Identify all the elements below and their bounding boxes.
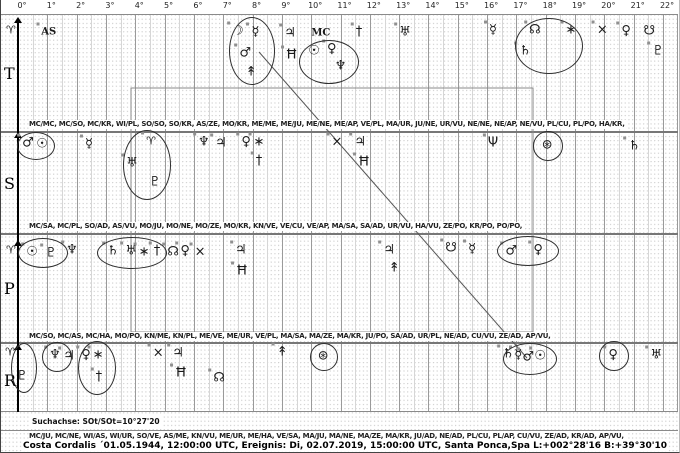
contact-list-row1: MC/MC, MC/SO, MC/KR, WI/PL, SO/SO, SO/KR… [29, 120, 627, 129]
half-degree-line-21 [648, 14, 649, 412]
degree-line-19 [575, 14, 576, 412]
vulkanus-glyph[interactable]: × [597, 24, 608, 37]
kronos-glyph[interactable]: † [256, 155, 263, 168]
vulkanus-glyph[interactable]: × [195, 246, 206, 259]
uranian-dial-chart: 0°1°2°3°4°5°6°7°8°9°10°11°12°13°14°15°16… [0, 0, 680, 453]
aries-glyph[interactable]: ♈ [6, 24, 16, 37]
highlight-ellipse [229, 17, 275, 85]
aries-glyph[interactable]: ♈ [6, 244, 16, 257]
degree-tick-label: 18° [543, 1, 557, 10]
jupiter-glyph[interactable]: ♃ [354, 136, 366, 149]
separator-line [1, 131, 678, 133]
degree-tick-label: 9° [281, 1, 290, 10]
half-degree-line-9 [297, 14, 298, 412]
mercury-glyph[interactable]: ☿ [85, 138, 93, 151]
degree-tick-label: 1° [47, 1, 56, 10]
half-degree-line-14 [443, 14, 444, 412]
jupiter-glyph[interactable]: ♃ [235, 244, 247, 257]
degree-tick-label: 13° [396, 1, 410, 10]
separator-line [1, 233, 678, 235]
vulkanus-glyph[interactable]: × [153, 347, 164, 360]
highlight-ellipse [78, 341, 116, 395]
degree-tick-label: 0° [17, 1, 26, 10]
degree-tick-label: 15° [455, 1, 469, 10]
chart-data-footer: Costa Cordalis ´01.05.1944, 12:00:00 UTC… [23, 441, 667, 451]
saturn-glyph[interactable]: ♄ [628, 140, 640, 153]
AS-label[interactable]: AS [41, 26, 56, 39]
uranus-glyph[interactable]: ♅ [650, 349, 662, 362]
degree-line-21 [634, 14, 635, 412]
row-label-S: S [4, 174, 15, 193]
venus-glyph[interactable]: ♀ [241, 136, 251, 149]
uranus-glyph[interactable]: ♅ [399, 26, 411, 39]
contact-list-row4: MC/JU, MC/NE, WI/AS, WI/UR, SO/VE, AS/ME… [29, 432, 626, 441]
half-degree-line-15 [472, 14, 473, 412]
highlight-ellipse [497, 236, 559, 266]
degree-tick-label: 5° [164, 1, 173, 10]
degree-tick-label: 4° [135, 1, 144, 10]
degree-tick-label: 6° [193, 1, 202, 10]
half-degree-line-13 [414, 14, 415, 412]
jupiter-glyph[interactable]: ♃ [284, 27, 296, 40]
mercury-glyph[interactable]: ☿ [468, 243, 476, 256]
jupiter-glyph[interactable]: ♃ [215, 137, 227, 150]
degree-tick-label: 8° [252, 1, 261, 10]
degree-line-15 [458, 14, 459, 412]
MC-label[interactable]: MC [311, 27, 330, 40]
lilith-glyph[interactable]: ☋ [643, 25, 655, 38]
row-label-T: T [4, 64, 15, 83]
half-degree-line-3 [121, 14, 122, 412]
highlight-ellipse [503, 343, 557, 375]
highlight-ellipse [599, 341, 629, 371]
degree-line-22 [663, 14, 664, 412]
axis-arrow [14, 17, 22, 23]
degree-tick-label: 10° [308, 1, 322, 10]
half-degree-line-4 [150, 14, 151, 412]
degree-line-12 [370, 14, 371, 412]
degree-line-13 [399, 14, 400, 412]
half-degree-line-12 [385, 14, 386, 412]
contact-list-row2: MC/SA, MC/PL, SO/AD, AS/VU, MO/JU, MO/NE… [29, 222, 524, 231]
half-degree-line-11 [355, 14, 356, 412]
venus-glyph[interactable]: ♀ [621, 25, 631, 38]
highlight-ellipse [299, 40, 359, 84]
degree-tick-label: 16° [484, 1, 498, 10]
highlight-ellipse [310, 343, 338, 371]
degree-tick-label: 11° [337, 1, 351, 10]
degree-tick-label: 21° [631, 1, 645, 10]
degree-tick-label: 20° [601, 1, 615, 10]
hades-glyph[interactable]: Ψ [488, 137, 498, 150]
degree-tick-label: 12° [367, 1, 381, 10]
mercury-glyph[interactable]: ☿ [489, 24, 497, 37]
kronos-glyph[interactable]: † [356, 26, 363, 39]
vulkanus-glyph[interactable]: × [332, 136, 343, 149]
degree-line-16 [487, 14, 488, 412]
highlight-ellipse [11, 343, 37, 393]
degree-tick-label: 7° [223, 1, 232, 10]
highlight-ellipse [17, 132, 55, 160]
separator-line [1, 411, 678, 412]
admetos-glyph[interactable]: Ħ [358, 156, 370, 169]
highlight-ellipse [533, 131, 563, 161]
zeus-glyph[interactable]: ↟ [389, 262, 400, 275]
admetos-glyph[interactable]: Ħ [175, 367, 187, 380]
admetos-glyph[interactable]: Ħ [286, 49, 298, 62]
neptune-glyph[interactable]: ♆ [198, 136, 210, 149]
pluto-glyph[interactable]: ♇ [652, 45, 664, 58]
venus-glyph[interactable]: ♀ [180, 245, 190, 258]
degree-line-2 [77, 14, 78, 412]
degree-line-7 [223, 14, 224, 412]
degree-line-14 [428, 14, 429, 412]
highlight-ellipse [123, 130, 171, 200]
jupiter-glyph[interactable]: ♃ [172, 347, 184, 360]
degree-tick-label: 3° [105, 1, 114, 10]
degree-tick-label: 22° [660, 1, 674, 10]
separator-line [1, 14, 678, 15]
degree-tick-label: 19° [572, 1, 586, 10]
row-label-P: P [4, 279, 15, 298]
half-degree-line-18 [560, 14, 561, 412]
admetos-glyph[interactable]: Ħ [236, 265, 248, 278]
degree-tick-label: 17° [513, 1, 527, 10]
node-glyph[interactable]: ☊ [167, 246, 179, 259]
lilith-glyph[interactable]: ☋ [445, 242, 457, 255]
half-degree-line-19 [590, 14, 591, 412]
jupiter-glyph[interactable]: ♃ [383, 244, 395, 257]
highlight-ellipse [97, 237, 167, 269]
highlight-ellipse [515, 18, 583, 74]
degree-tick-label: 14° [425, 1, 439, 10]
degree-line-6 [194, 14, 195, 412]
search-axis-readout: Suchachse: SOt/SOt=10°27'20 [29, 416, 163, 427]
separator-line [1, 430, 678, 431]
contact-list-row3: MC/SO, MC/AS, MC/HA, MO/PO, KN/ME, KN/PL… [29, 332, 552, 341]
apollon-glyph[interactable]: ∗ [254, 136, 265, 149]
zeus-glyph[interactable]: ↟ [277, 346, 288, 359]
grid-right-edge [677, 14, 678, 412]
degree-line-5 [165, 14, 166, 412]
node-glyph[interactable]: ☊ [213, 372, 225, 385]
highlight-ellipse [18, 238, 68, 268]
degree-line-4 [135, 14, 136, 412]
half-degree-line-6 [209, 14, 210, 412]
highlight-ellipse [42, 342, 72, 372]
degree-tick-label: 2° [76, 1, 85, 10]
